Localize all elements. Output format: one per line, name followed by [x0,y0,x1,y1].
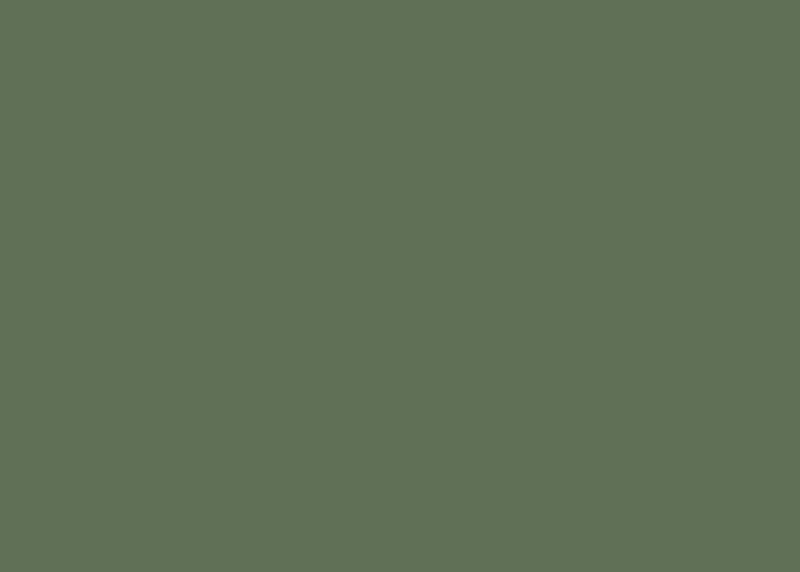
aerial-render [0,0,800,572]
scene-canvas [0,0,800,572]
